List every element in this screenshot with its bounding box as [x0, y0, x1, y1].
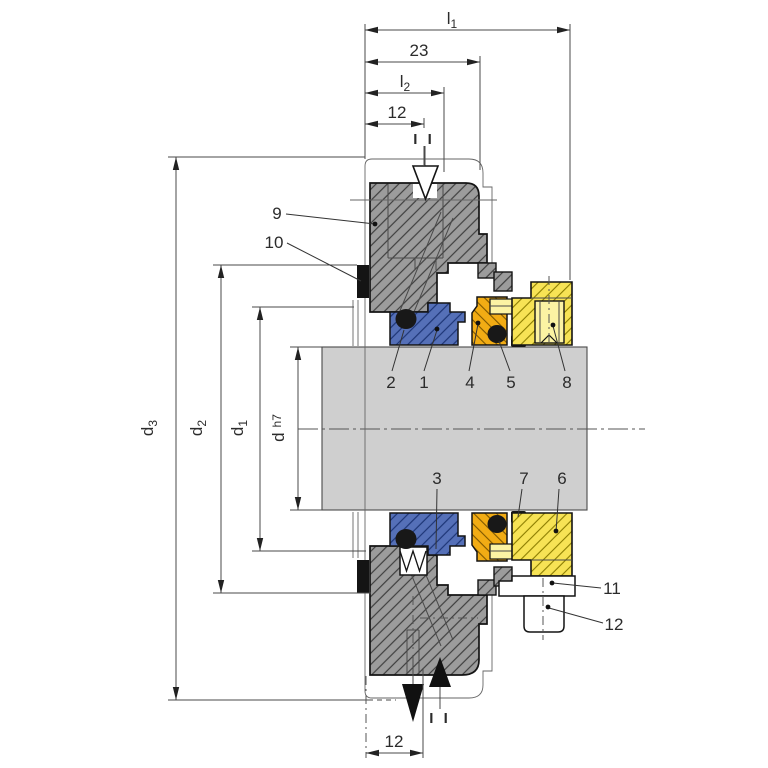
- dim-12-top-label: 12: [388, 103, 407, 122]
- callout-3: 3: [432, 469, 441, 488]
- callout-2: 2: [386, 373, 395, 392]
- section-mark-bottom: I I: [429, 710, 451, 727]
- callout-7: 7: [519, 469, 528, 488]
- flow-arrow-down-icon: [402, 684, 424, 722]
- dim-12-bottom-label: 12: [385, 732, 404, 751]
- dim-d1-label: d1: [228, 420, 250, 436]
- technical-drawing-canvas: I I I I l1 23 l2 12 d3 d2 d1 dh7: [0, 0, 768, 768]
- dim-23-label: 23: [410, 41, 429, 60]
- callout-4: 4: [465, 373, 474, 392]
- dim-l1-label: l1: [447, 9, 458, 31]
- section-mark-top: I I: [413, 131, 435, 148]
- callout-11: 11: [603, 579, 621, 598]
- gasket-lower-part10: [357, 560, 369, 593]
- gland-step-piece-upper: [478, 263, 512, 291]
- o-ring-part2: [396, 309, 417, 329]
- callout-8: 8: [562, 373, 571, 392]
- callout-6: 6: [557, 469, 566, 488]
- dim-d3-label: d3: [138, 420, 160, 436]
- callout-5: 5: [506, 373, 515, 392]
- drive-collar-upper: [512, 276, 572, 346]
- callout-10: 10: [265, 233, 284, 252]
- callout-9: 9: [272, 204, 281, 223]
- dim-l2-label: l2: [400, 72, 411, 94]
- gasket-upper-part10: [357, 265, 369, 298]
- seal-section-drawing: I I I I l1 23 l2 12 d3 d2 d1 dh7: [0, 0, 768, 768]
- dim-d2-label: d2: [187, 420, 209, 436]
- o-ring-part5: [488, 325, 507, 343]
- o-ring-lower: [396, 529, 417, 549]
- dim-23: [365, 56, 480, 170]
- o-ring-lower-4: [488, 515, 507, 533]
- drive-collar-lower-part6: [512, 513, 572, 576]
- callout-1: 1: [419, 373, 428, 392]
- callout-12: 12: [605, 615, 624, 634]
- dim-d-h7-label: dh7: [269, 414, 288, 442]
